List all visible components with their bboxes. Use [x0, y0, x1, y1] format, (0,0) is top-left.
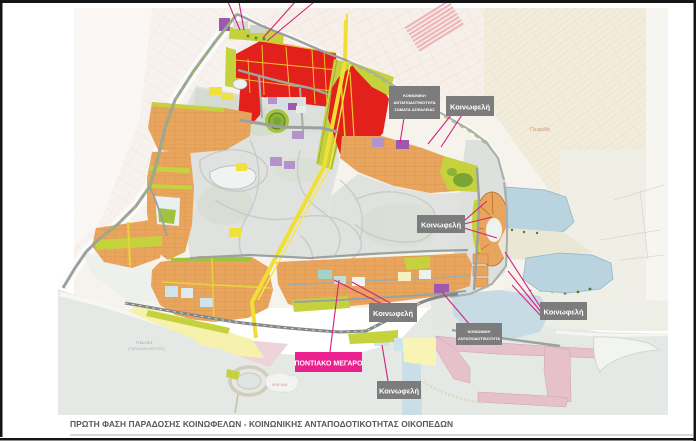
svg-text:ΑΝΤΑΠΟΔΟΤΙΚΟΤΗΤΑ: ΑΝΤΑΠΟΔΟΤΙΚΟΤΗΤΑ — [458, 336, 500, 341]
svg-text:ΣΩΜΑΤΑ ΑΣΦΑΛΕΙΑΣ: ΣΩΜΑΤΑ ΑΣΦΑΛΕΙΑΣ — [394, 107, 435, 112]
svg-text:ΚΟΙΝΩΝΙΚΗ: ΚΟΙΝΩΝΙΚΗ — [403, 93, 426, 98]
svg-text:ΜΑΡΙΝΑ: ΜΑΡΙΝΑ — [272, 382, 288, 387]
svg-text:Κοινωφελή: Κοινωφελή — [450, 103, 491, 112]
svg-text:Κοινωφελή: Κοινωφελή — [421, 221, 462, 230]
svg-text:ΠΡΩΤΗ ΦΑΣΗ ΠΑΡΑΔΟΣΗΣ ΚΟΙΝΩΦΕΛΩ: ΠΡΩΤΗ ΦΑΣΗ ΠΑΡΑΔΟΣΗΣ ΚΟΙΝΩΦΕΛΩΝ - ΚΟΙΝΩΝ… — [70, 419, 453, 429]
svg-text:(ΠΑΡΑΛΙΑΚΟ ΜΕΤΩΠΟ): (ΠΑΡΑΛΙΑΚΟ ΜΕΤΩΠΟ) — [128, 347, 165, 351]
svg-text:ΚΟΙΝΩΝΙΚΗ: ΚΟΙΝΩΝΙΚΗ — [468, 329, 491, 334]
svg-text:Γλυφάδα: Γλυφάδα — [530, 126, 550, 133]
svg-text:Κοινωφελή: Κοινωφελή — [373, 309, 414, 318]
svg-text:ΠΟΝΤΙΑΚΟ ΜΕΓΑΡΟ: ΠΟΝΤΙΑΚΟ ΜΕΓΑΡΟ — [294, 361, 363, 368]
svg-text:Κοινωφελή: Κοινωφελή — [379, 387, 420, 396]
svg-text:ΑΝΤΑΠΟΔΟΤΙΚΟΤΗΤΑ: ΑΝΤΑΠΟΔΟΤΙΚΟΤΗΤΑ — [393, 100, 435, 105]
svg-text:Κοινωφελή: Κοινωφελή — [543, 308, 584, 317]
svg-text:ΓΠΔ-ΠΣ1: ΓΠΔ-ΠΣ1 — [136, 340, 153, 345]
